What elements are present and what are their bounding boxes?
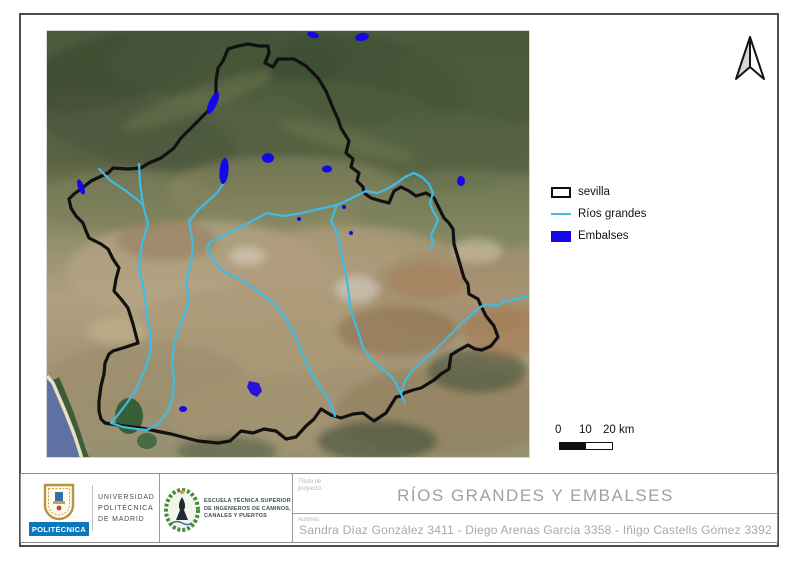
legend-label: Ríos grandes	[578, 208, 646, 220]
reservoir	[342, 205, 346, 209]
legend: sevilla Ríos grandes Embalses	[551, 185, 691, 251]
scale-tick-10: 10	[579, 424, 592, 436]
terrain-texture	[47, 31, 530, 458]
school-line: ESCUELA TÉCNICA SUPERIOR	[204, 498, 292, 506]
section-divider	[159, 474, 160, 542]
legend-label: sevilla	[578, 186, 610, 198]
marsh-patch	[137, 433, 157, 449]
reservoir	[262, 153, 274, 163]
legend-item-sevilla: sevilla	[551, 185, 691, 199]
ets-crest-logo-icon	[162, 487, 202, 533]
legend-item-embalses: Embalses	[551, 229, 691, 243]
scale-segment-filled	[560, 443, 586, 449]
map-layout-page: sevilla Ríos grandes Embalses 0 10 20 km	[0, 0, 800, 566]
legend-item-rios-grandes: Ríos grandes	[551, 207, 691, 221]
map-canvas	[46, 30, 530, 458]
school-name: ESCUELA TÉCNICA SUPERIOR DE INGENIEROS D…	[204, 498, 292, 521]
university-line: UNIVERSIDAD	[98, 492, 158, 503]
row-divider	[292, 513, 777, 514]
reservoir	[322, 166, 332, 173]
upm-divider	[92, 485, 93, 531]
university-name: UNIVERSIDAD POLITÉCNICA DE MADRID	[98, 492, 158, 525]
school-line: CANALES Y PUERTOS	[204, 513, 292, 521]
reservoir	[297, 217, 301, 221]
reservoir	[457, 176, 465, 186]
school-line: DE INGENIEROS DE CAMINOS,	[204, 506, 292, 514]
title-block: POLITÉCNICA UNIVERSIDAD POLITÉCNICA DE M…	[20, 473, 778, 543]
authors-text: Sandra Díaz González 3411 - Diego Arenas…	[292, 523, 779, 537]
project-title: RÍOS GRANDES Y EMBALSES	[292, 486, 779, 506]
scale-bar: 0 10 20 km	[552, 424, 662, 454]
scale-tick-0: 0	[555, 424, 561, 436]
legend-label: Embalses	[578, 230, 629, 242]
upm-banner: POLITÉCNICA	[29, 522, 89, 536]
north-arrow-icon	[731, 33, 769, 85]
reservoir	[179, 406, 187, 412]
reservoir	[349, 231, 353, 235]
project-label-line: Título de	[298, 479, 323, 486]
river-line-swatch	[551, 213, 571, 215]
upm-shield-logo-icon	[42, 482, 76, 522]
scale-segment-empty	[586, 443, 612, 449]
sevilla-outline-swatch	[551, 187, 571, 198]
university-line: DE MADRID	[98, 514, 158, 525]
reservoir-fill-swatch	[551, 231, 571, 242]
satellite-map	[47, 31, 530, 458]
university-line: POLITÉCNICA	[98, 503, 158, 514]
scale-bar-segments	[559, 442, 613, 450]
scale-tick-20km: 20 km	[603, 424, 634, 436]
